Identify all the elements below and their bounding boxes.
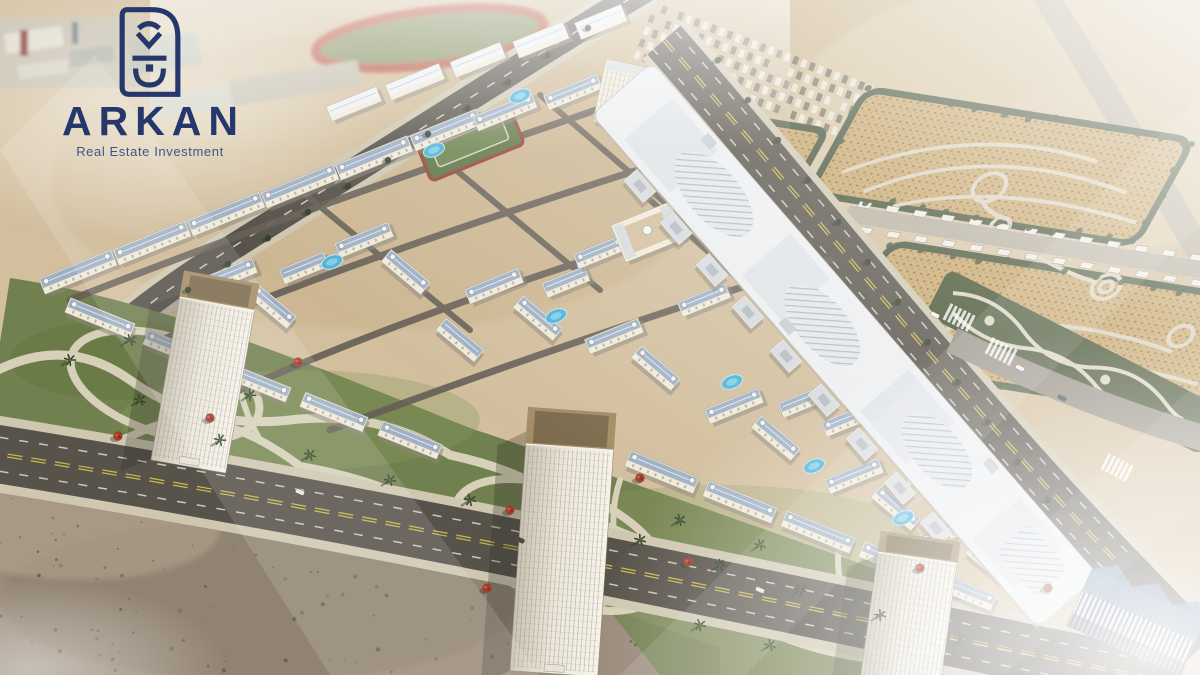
- aerial-render-page: ARKAN Real Estate Investment: [0, 0, 1200, 675]
- brand-tagline: Real Estate Investment: [36, 144, 264, 159]
- brand-logo: ARKAN Real Estate Investment: [36, 6, 264, 159]
- office-tower: [481, 405, 616, 675]
- brand-name: ARKAN: [36, 100, 264, 143]
- arkan-emblem-icon: [117, 6, 183, 98]
